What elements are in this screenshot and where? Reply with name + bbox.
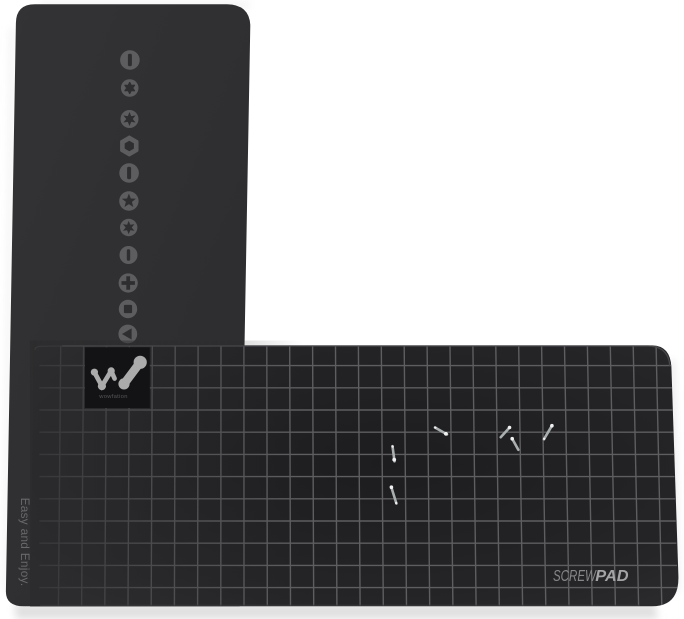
- svg-text:wowfation: wowfation: [98, 394, 127, 400]
- svg-text:PAD: PAD: [595, 567, 629, 585]
- svg-text:SCREW: SCREW: [553, 566, 597, 584]
- svg-text:Easy and Enjoy.: Easy and Enjoy.: [18, 498, 32, 587]
